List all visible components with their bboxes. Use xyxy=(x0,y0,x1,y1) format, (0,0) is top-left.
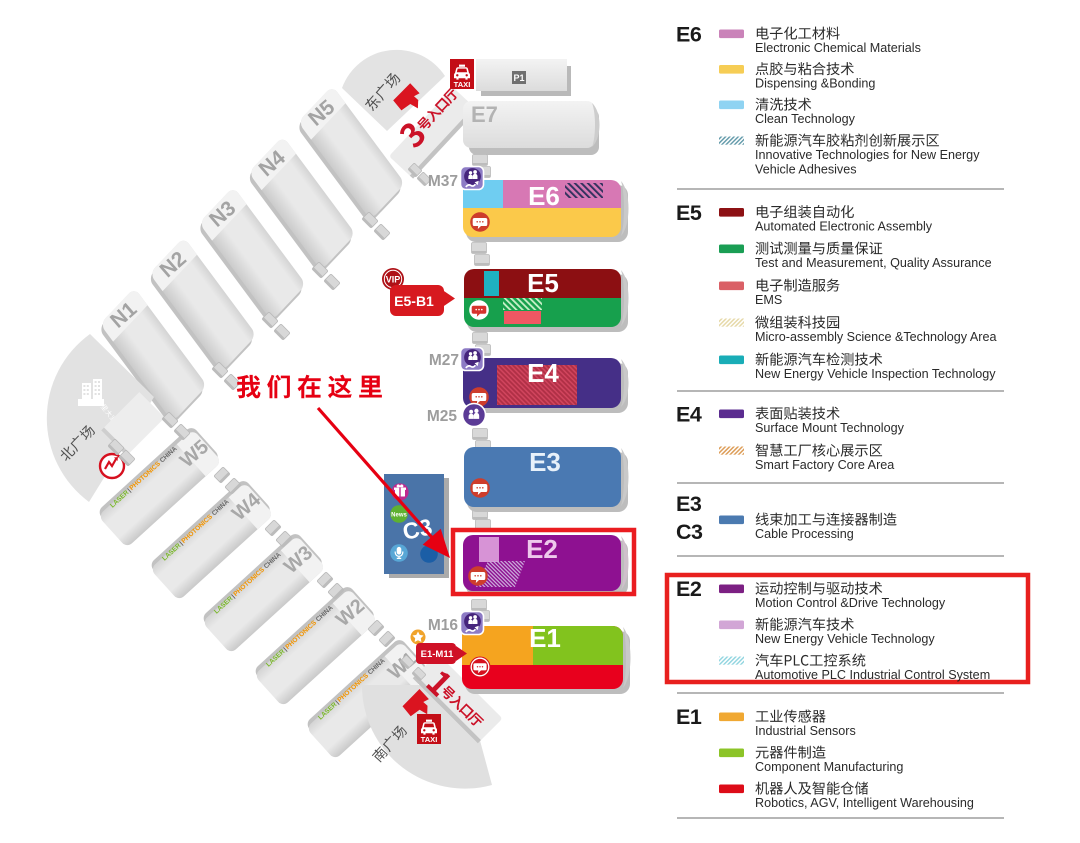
svg-text:Robotics, AGV, Intelligent War: Robotics, AGV, Intelligent Warehousing xyxy=(755,796,974,810)
svg-text:Dispensing &Bonding: Dispensing &Bonding xyxy=(755,77,875,91)
svg-text:Surface Mount Technology: Surface Mount Technology xyxy=(755,421,905,435)
svg-text:E2: E2 xyxy=(676,577,702,601)
svg-text:E6: E6 xyxy=(528,181,560,211)
svg-text:Cable Processing: Cable Processing xyxy=(755,527,854,541)
svg-text:M25: M25 xyxy=(427,408,458,425)
svg-text:Test and Measurement, Quality: Test and Measurement, Quality Assurance xyxy=(755,256,992,270)
svg-text:VIP: VIP xyxy=(386,275,401,285)
svg-text:New Energy Vehicle Technology: New Energy Vehicle Technology xyxy=(755,632,935,646)
svg-text:Motion Control &Drive Technolo: Motion Control &Drive Technology xyxy=(755,596,946,610)
svg-text:E3: E3 xyxy=(676,492,702,516)
svg-text:TAXI: TAXI xyxy=(454,80,471,89)
svg-text:E5: E5 xyxy=(527,268,559,298)
svg-text:E7: E7 xyxy=(471,102,498,127)
svg-text:Smart Factory Core Area: Smart Factory Core Area xyxy=(755,458,894,472)
svg-text:C3: C3 xyxy=(676,520,703,544)
svg-text:Automated Electronic Assembly: Automated Electronic Assembly xyxy=(755,220,933,234)
svg-text:E5: E5 xyxy=(676,201,702,225)
svg-text:E1: E1 xyxy=(529,623,561,653)
svg-text:E1: E1 xyxy=(676,705,702,729)
svg-text:Micro-assembly Science &Techno: Micro-assembly Science &Technology Area xyxy=(755,330,997,344)
svg-text:Clean Technology: Clean Technology xyxy=(755,112,856,126)
svg-text:Innovative Technologies for Ne: Innovative Technologies for New Energy xyxy=(755,148,980,162)
svg-text:Vehicle Adhesives: Vehicle Adhesives xyxy=(755,163,857,177)
svg-text:Industrial Sensors: Industrial Sensors xyxy=(755,724,856,738)
svg-text:New Energy Vehicle Inspection: New Energy Vehicle Inspection Technology xyxy=(755,367,996,381)
svg-text:E1-M11: E1-M11 xyxy=(421,649,454,660)
svg-text:E4: E4 xyxy=(527,358,559,388)
svg-text:Electronic Chemical Materials: Electronic Chemical Materials xyxy=(755,41,921,55)
svg-text:E4: E4 xyxy=(676,403,702,427)
svg-text:P1: P1 xyxy=(513,73,524,83)
svg-text:M27: M27 xyxy=(429,352,459,369)
svg-text:E3: E3 xyxy=(529,447,561,477)
svg-text:E5-B1: E5-B1 xyxy=(394,293,434,309)
svg-text:TAXI: TAXI xyxy=(421,735,438,744)
svg-text:Automotive PLC Industrial Cont: Automotive PLC Industrial Control System xyxy=(755,668,990,682)
svg-text:EMS: EMS xyxy=(755,293,782,307)
svg-text:M37: M37 xyxy=(428,173,458,190)
svg-text:M16: M16 xyxy=(428,617,459,634)
svg-text:News: News xyxy=(391,513,407,519)
svg-text:E2: E2 xyxy=(526,534,558,564)
svg-text:E6: E6 xyxy=(676,23,702,47)
svg-text:Component Manufacturing: Component Manufacturing xyxy=(755,760,903,774)
